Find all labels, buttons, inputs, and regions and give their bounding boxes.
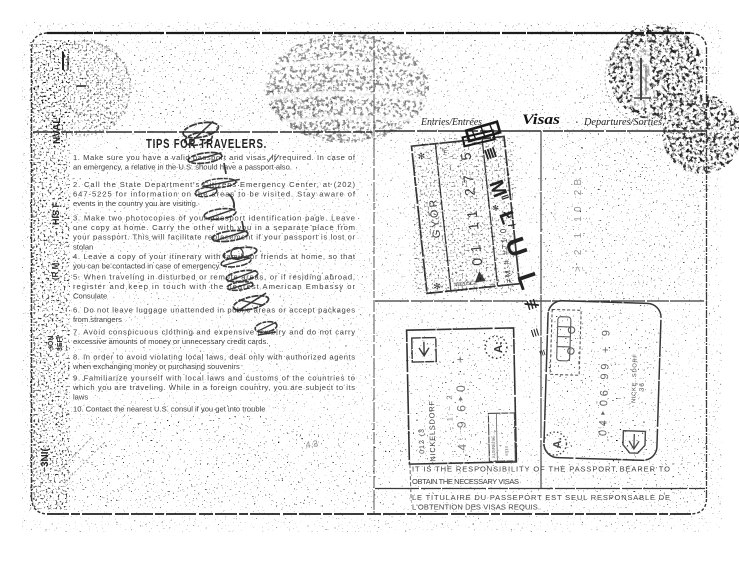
svg-text:3. Make two photocopies of you: 3. Make two photocopies of your passport…	[73, 214, 355, 223]
svg-text:LE TITULAIRE DU PASSEPORT EST: LE TITULAIRE DU PASSEPORT EST SEUL RESPO…	[412, 493, 670, 502]
svg-text:7. Avoid conspicuous clothing: 7. Avoid conspicuous clothing and expens…	[73, 328, 355, 337]
svg-text:4. Leave a copy of your itiner: 4. Leave a copy of your itinerary with f…	[73, 252, 356, 261]
svg-text:4,3: 4,3	[305, 438, 319, 450]
svg-text:647-5225 for information on th: 647-5225 for information on the areas to…	[73, 190, 356, 199]
svg-text:stolan: stolan	[73, 242, 93, 251]
svg-text:,ION: ,ION	[48, 336, 55, 350]
svg-text:TIPS FOR TRAVELERS.: TIPS FOR TRAVELERS.	[146, 137, 267, 151]
svg-text:3EFI': 3EFI'	[57, 334, 64, 351]
svg-text:Visas: Visas	[522, 112, 560, 128]
svg-text:NVAL': NVAL'	[52, 115, 63, 144]
svg-text:events in the country you are: events in the country you are visiting.	[73, 199, 198, 208]
svg-text:> 2 1 10 2B: > 2 1 10 2B	[573, 176, 584, 272]
svg-text:8. In order to avoid violating: 8. In order to avoid violating local law…	[73, 353, 355, 362]
svg-text:Consulate: Consulate	[73, 292, 107, 301]
svg-text:9. Familiarize yourself with l: 9. Familiarize yourself with local laws …	[73, 374, 355, 383]
svg-text:5. When traveling in disturbed: 5. When traveling in disturbed or remote…	[73, 273, 355, 282]
svg-text:laws: laws	[73, 393, 88, 402]
svg-text:OBTAIN THE NECESSARY VISAS: OBTAIN THE NECESSARY VISAS	[412, 477, 519, 486]
svg-text:10. Contact the nearest U.S. c: 10. Contact the nearest U.S. consul if y…	[73, 405, 266, 414]
svg-text:excessive amounts of money or: excessive amounts of money or unnecessar…	[73, 337, 268, 346]
svg-text:from strangers: from strangers	[73, 315, 122, 324]
svg-text:6. Do not leave luggage unatte: 6. Do not leave luggage unattended in pu…	[73, 306, 355, 315]
svg-text:register and keep in touch wit: register and keep in touch with the near…	[73, 282, 355, 291]
svg-text:when exchanging money or purch: when exchanging money or purchasing souv…	[72, 362, 240, 371]
svg-text:Departures/Sorties: Departures/Sorties	[583, 117, 662, 128]
svg-text:your passport. This will facil: your passport. This will facilitate repl…	[73, 233, 355, 242]
svg-text:Entries/Entrées: Entries/Entrées	[420, 117, 482, 128]
svg-text:3NI(: 3NI(	[40, 447, 51, 467]
svg-text:an emergency, a relative in th: an emergency, a relative in the U.S. sho…	[73, 163, 292, 172]
svg-text:which you are traveling. While: which you are traveling. While in a fore…	[72, 383, 355, 392]
svg-text:you can be contacted in case o: you can be contacted in case of emergenc…	[73, 262, 221, 271]
svg-text:IT IS THE RESPONSIBILITY OF TH: IT IS THE RESPONSIBILITY OF THE PASSPORT…	[412, 465, 670, 474]
svg-text:L'OBTENTION DES VISAS REQUIS.: L'OBTENTION DES VISAS REQUIS.	[412, 503, 540, 512]
svg-text:one copy at home. Carry the ot: one copy at home. Carry the other with y…	[73, 223, 355, 232]
svg-text:HIS F: HIS F	[51, 201, 61, 225]
svg-text:(R M:: (R M:	[51, 260, 60, 280]
